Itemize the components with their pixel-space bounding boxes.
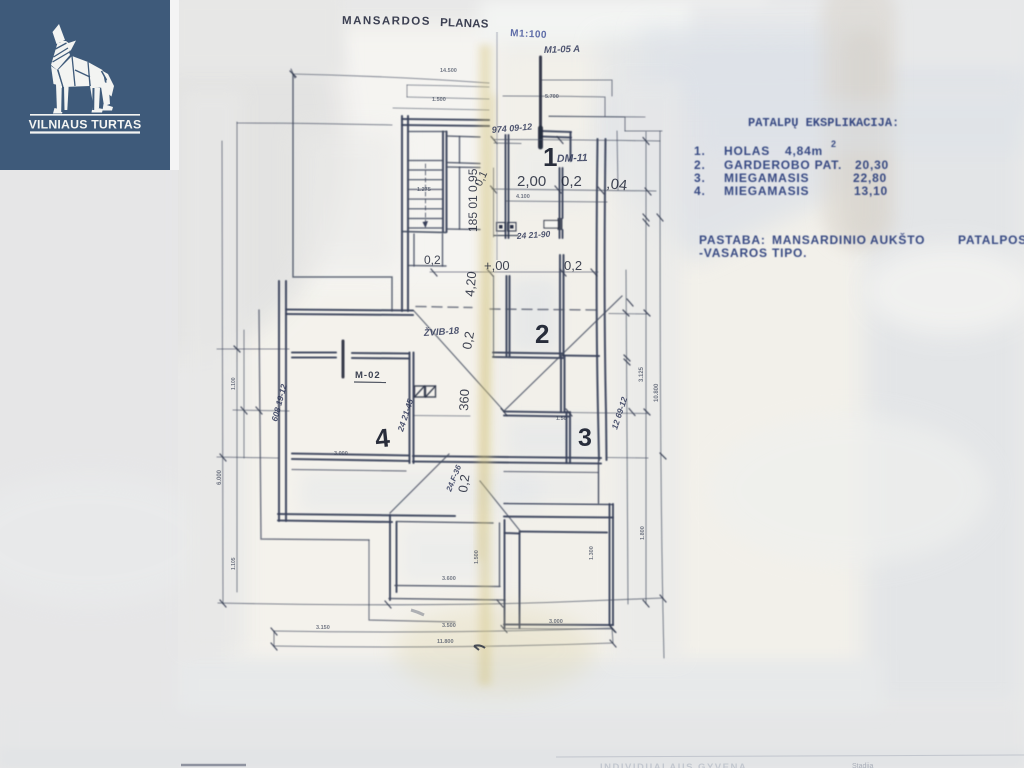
svg-text:M-02: M-02 bbox=[355, 370, 381, 381]
svg-text:5.700: 5.700 bbox=[545, 94, 559, 100]
svg-text:1: 1 bbox=[543, 142, 557, 172]
svg-text:2: 2 bbox=[831, 139, 837, 149]
svg-text:10.800: 10.800 bbox=[654, 383, 660, 402]
svg-text:1.500: 1.500 bbox=[432, 97, 446, 103]
svg-text:PATALPOS: PATALPOS bbox=[958, 233, 1024, 247]
svg-text:3.500: 3.500 bbox=[442, 623, 456, 629]
svg-text:1.: 1. bbox=[694, 144, 706, 158]
svg-text:MIEGAMASIS: MIEGAMASIS bbox=[724, 171, 809, 185]
svg-text:MIEGAMASIS: MIEGAMASIS bbox=[724, 184, 809, 198]
svg-text:PATALPŲ EKSPLIKACIJA:: PATALPŲ EKSPLIKACIJA: bbox=[748, 116, 899, 130]
svg-text:HOLAS: HOLAS bbox=[724, 144, 770, 158]
svg-text:+,00: +,00 bbox=[484, 258, 510, 273]
svg-text:AUKŠTO: AUKŠTO bbox=[870, 232, 925, 247]
svg-text:3.000: 3.000 bbox=[334, 451, 348, 457]
svg-text:4,20: 4,20 bbox=[462, 271, 479, 298]
svg-text:MANSARDINIO: MANSARDINIO bbox=[772, 233, 867, 247]
svg-text:11.800: 11.800 bbox=[437, 639, 454, 645]
svg-text:3.125: 3.125 bbox=[639, 366, 645, 382]
svg-text:0,2: 0,2 bbox=[564, 258, 582, 273]
svg-text:0,2: 0,2 bbox=[459, 330, 477, 350]
svg-text:0,2: 0,2 bbox=[561, 173, 582, 190]
svg-text:14.500: 14.500 bbox=[440, 68, 457, 74]
svg-text:13,10: 13,10 bbox=[854, 184, 888, 198]
svg-text:1.800: 1.800 bbox=[640, 526, 646, 540]
svg-text:,04: ,04 bbox=[606, 175, 629, 194]
svg-text:1.500: 1.500 bbox=[474, 550, 480, 564]
svg-text:Stadija: Stadija bbox=[852, 763, 874, 768]
svg-text:22,80: 22,80 bbox=[853, 171, 887, 185]
svg-text:GARDEROBO PAT.: GARDEROBO PAT. bbox=[724, 158, 842, 172]
svg-text:3.150: 3.150 bbox=[316, 625, 330, 631]
svg-text:MANSARDOS: MANSARDOS bbox=[342, 15, 431, 28]
svg-text:2.: 2. bbox=[694, 158, 706, 172]
svg-text:2,00: 2,00 bbox=[517, 173, 546, 190]
svg-text:0,2: 0,2 bbox=[424, 253, 441, 267]
svg-text:3: 3 bbox=[578, 424, 592, 452]
svg-text:4,84m: 4,84m bbox=[785, 144, 823, 158]
svg-text:6.000: 6.000 bbox=[217, 469, 223, 485]
svg-text:3.000: 3.000 bbox=[549, 619, 563, 625]
svg-text:3.: 3. bbox=[694, 171, 706, 185]
svg-text:4.: 4. bbox=[694, 184, 706, 198]
svg-text:2: 2 bbox=[535, 319, 549, 349]
svg-text:360: 360 bbox=[456, 389, 472, 411]
svg-text:M1:100: M1:100 bbox=[510, 28, 547, 41]
svg-text:INDIVIDUALAUS GYVENA: INDIVIDUALAUS GYVENA bbox=[600, 762, 747, 768]
svg-text:20,30: 20,30 bbox=[855, 158, 889, 172]
svg-text:VILNIAUS TURTAS: VILNIAUS TURTAS bbox=[29, 118, 142, 132]
svg-text:-VASAROS TIPO.: -VASAROS TIPO. bbox=[699, 246, 807, 260]
svg-text:PLANAS: PLANAS bbox=[440, 17, 489, 31]
svg-text:PASTABA:: PASTABA: bbox=[699, 233, 766, 247]
svg-text:1.300: 1.300 bbox=[589, 546, 595, 560]
svg-text:4.100: 4.100 bbox=[516, 194, 530, 200]
svg-text:DM-11: DM-11 bbox=[557, 152, 588, 165]
svg-text:1.105: 1.105 bbox=[231, 557, 237, 570]
svg-text:1.50: 1.50 bbox=[556, 416, 567, 422]
svg-text:1.100: 1.100 bbox=[231, 377, 237, 390]
svg-text:M1-05 A: M1-05 A bbox=[544, 44, 581, 56]
svg-text:3.600: 3.600 bbox=[442, 576, 456, 582]
svg-text:1.275: 1.275 bbox=[417, 187, 431, 193]
